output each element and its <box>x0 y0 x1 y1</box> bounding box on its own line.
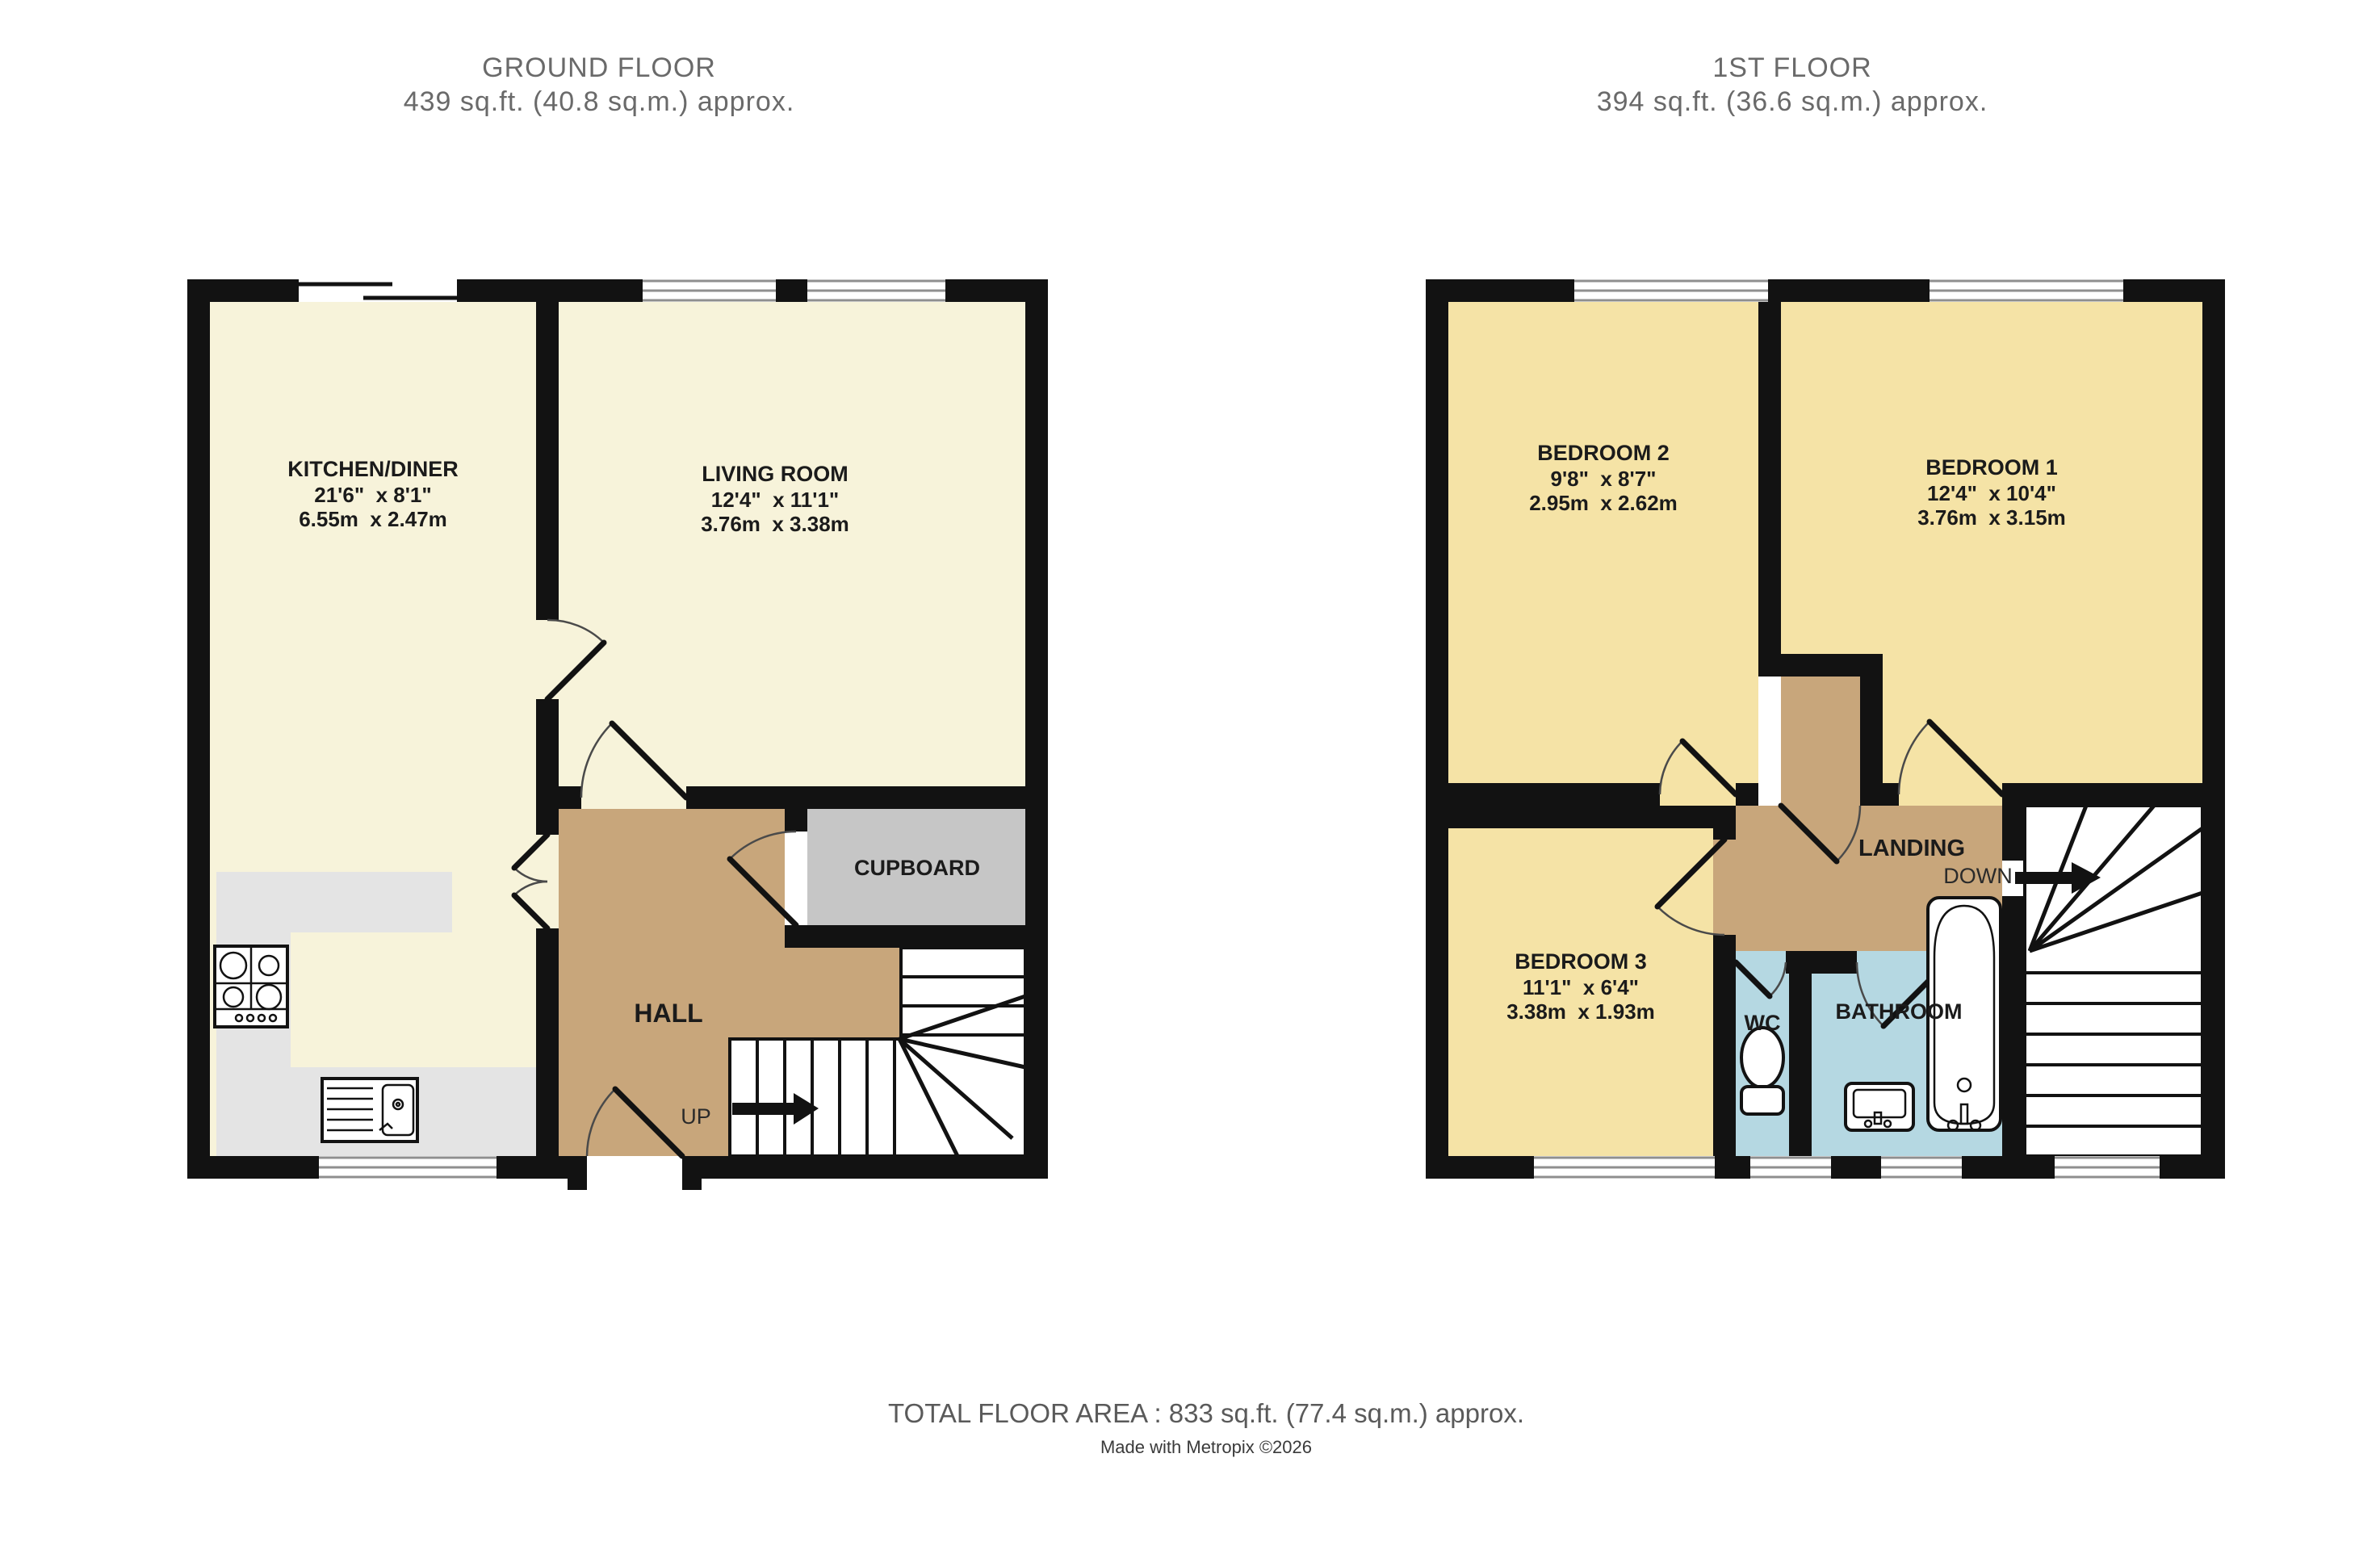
bedroom3-size-metric: 3.38m x 1.93m <box>1506 999 1655 1024</box>
living-room-size-metric: 3.76m x 3.38m <box>701 512 849 536</box>
bedroom2-size-imperial: 9'8" x 8'7" <box>1551 467 1657 491</box>
wc-label: WC <box>1745 1011 1781 1035</box>
living-door-gap <box>581 786 686 809</box>
bedroom2-size-metric: 2.95m x 2.62m <box>1529 491 1678 515</box>
bedroom2-room <box>1448 302 1758 783</box>
hob-icon <box>215 946 287 1027</box>
sink-icon <box>322 1079 417 1142</box>
top-opening <box>299 284 457 298</box>
window <box>807 279 945 302</box>
living-room-label: LIVING ROOM <box>702 462 849 486</box>
bedroom3-label: BEDROOM 3 <box>1515 949 1647 974</box>
window <box>1534 1156 1715 1179</box>
ground-floor-title: GROUND FLOOR <box>482 52 716 83</box>
up-label: UP <box>681 1104 711 1129</box>
bedroom1-size-metric: 3.76m x 3.15m <box>1917 505 2066 530</box>
floorplan-page: GROUND FLOOR 439 sq.ft. (40.8 sq.m.) app… <box>0 0 2380 1550</box>
kitchen-diner-label: KITCHEN/DINER <box>287 457 459 481</box>
basin-icon <box>1846 1083 1913 1130</box>
window <box>1881 1156 1962 1179</box>
first-floor-title: 1ST FLOOR <box>1712 52 1871 83</box>
landing-protrusion <box>1781 677 1860 806</box>
window <box>1930 279 2123 302</box>
down-label: DOWN <box>1943 864 2012 888</box>
bedroom1-label: BEDROOM 1 <box>1925 455 2058 480</box>
bedroom1-size-imperial: 12'4" x 10'4" <box>1927 481 2056 505</box>
living-room <box>559 302 1025 786</box>
credit-line: Made with Metropix ©2026 <box>1100 1437 1312 1457</box>
first-floor-area: 394 sq.ft. (36.6 sq.m.) approx. <box>1597 86 1988 117</box>
floorplan-drawing: GROUND FLOOR 439 sq.ft. (40.8 sq.m.) app… <box>0 0 2380 1550</box>
window <box>319 1156 497 1179</box>
first-floor-plan: BEDROOM 2 9'8" x 8'7" 2.95m x 2.62m BEDR… <box>1426 279 2225 1179</box>
window <box>1750 1156 1831 1179</box>
ground-floor-area: 439 sq.ft. (40.8 sq.m.) approx. <box>404 86 795 117</box>
window <box>643 279 776 302</box>
ground-floor-plan: KITCHEN/DINER 21'6" x 8'1" 6.55m x 2.47m… <box>187 279 1048 1190</box>
landing-label: LANDING <box>1858 836 1965 861</box>
window <box>1574 279 1768 302</box>
hall-label: HALL <box>634 999 702 1028</box>
kitchen-diner-size-imperial: 21'6" x 8'1" <box>314 483 431 507</box>
window <box>2055 1156 2160 1179</box>
total-floor-area: TOTAL FLOOR AREA : 833 sq.ft. (77.4 sq.m… <box>888 1398 1524 1428</box>
first-stairs <box>2015 806 2202 1156</box>
bedroom2-label: BEDROOM 2 <box>1537 441 1670 465</box>
toilet-icon <box>1741 1028 1783 1114</box>
bedroom3-size-imperial: 11'1" x 6'4" <box>1523 975 1639 999</box>
bedroom1-door-gap <box>1899 783 2002 806</box>
cupboard-label: CUPBOARD <box>854 856 980 880</box>
bathroom-label: BATHROOM <box>1836 999 1963 1024</box>
kitchen-diner-size-metric: 6.55m x 2.47m <box>299 507 447 531</box>
living-room-size-imperial: 12'4" x 11'1" <box>711 488 839 512</box>
